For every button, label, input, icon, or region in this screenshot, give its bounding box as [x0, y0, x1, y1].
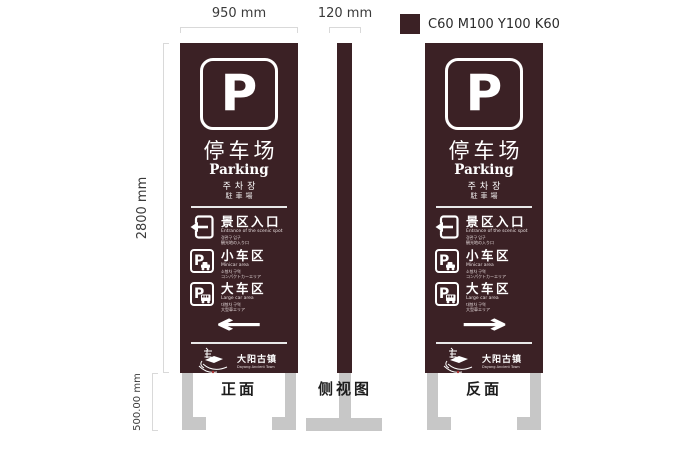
parking-p-badge: P [200, 58, 278, 130]
logo-english-text: Dayang Ancient Town [237, 365, 277, 369]
direction-arrow-right-icon: → [425, 309, 543, 341]
signage-design-drawing: 950 mm 120 mm C60 M100 Y100 K60 2800 mm … [0, 0, 680, 453]
row-small-car-area: P 小车区 Minicar area 소형차 구역 コンパクトカーエリア [189, 248, 295, 279]
row-scenic-entrance: 景区入口 Entrance of the scenic spot 경관구 입구 … [434, 214, 540, 245]
title-japanese: 駐車場 [425, 191, 543, 201]
parking-bus-icon: P [189, 281, 215, 307]
row-sub-en: Entrance of the scenic spot [466, 229, 528, 235]
row-title: 景区入口 [221, 214, 283, 229]
parking-bus-icon: P [434, 281, 460, 307]
color-spec-label: C60 M100 Y100 K60 [428, 17, 560, 32]
row-large-car-area: P 大车区 Large car area 대형차 구역 大型車エリア [434, 281, 540, 312]
title-english: Parking [180, 162, 298, 178]
dimension-500mm-label: 500.00 mm [132, 367, 144, 437]
row-title: 小车区 [221, 248, 266, 263]
dimension-500mm-bracket [152, 373, 158, 431]
title-english: Parking [425, 162, 543, 178]
parking-car-icon: P [189, 248, 215, 274]
row-sub-jp: コンパクトカーエリア [466, 274, 511, 279]
row-title: 小车区 [466, 248, 511, 263]
divider-line [191, 342, 287, 344]
brand-logo: 大阳古镇 Dayang Ancient Town [196, 347, 292, 374]
parking-p-badge: P [445, 58, 523, 130]
dimension-2800mm-label: 2800 mm [135, 168, 151, 248]
ancient-town-logo-icon [441, 347, 477, 374]
parking-p-letter: P [221, 68, 258, 118]
side-view-label: 侧视图 [300, 378, 390, 399]
row-scenic-entrance: 景区入口 Entrance of the scenic spot 경관구 입구 … [189, 214, 295, 245]
row-large-car-area: P 大车区 Large car area 대형차 구역 大型車エリア [189, 281, 295, 312]
row-title: 大车区 [221, 281, 266, 296]
parking-car-icon: P [434, 248, 460, 274]
title-japanese: 駐車場 [180, 191, 298, 201]
row-sub-jp: 観光地の入り口 [466, 240, 528, 245]
brand-logo: 大阳古镇 Dayang Ancient Town [441, 347, 537, 374]
direction-arrow-left-icon: ← [180, 309, 298, 341]
row-sub-jp: コンパクトカーエリア [221, 274, 266, 279]
dimension-120mm-bracket [329, 27, 361, 33]
sign-back-panel: P 停车场 Parking 주차장 駐車場 景区入口 Entrance of t… [425, 43, 543, 373]
back-left-foot [438, 417, 451, 430]
row-sub-jp: 観光地の入り口 [221, 240, 283, 245]
ancient-town-logo-icon [196, 347, 232, 374]
front-right-foot [272, 417, 285, 430]
logo-chinese-text: 大阳古镇 [482, 352, 522, 365]
row-small-car-area: P 小车区 Minicar area 소형차 구역 コンパクトカーエリア [434, 248, 540, 279]
dimension-950mm-bracket [180, 27, 298, 33]
title-chinese: 停车场 [425, 135, 543, 165]
back-right-foot [517, 417, 530, 430]
side-base-plate [306, 418, 382, 431]
entrance-arrow-icon [434, 214, 460, 240]
divider-line [436, 342, 532, 344]
sign-side-profile [337, 43, 352, 373]
dimension-950mm-label: 950 mm [180, 6, 298, 21]
dimension-2800mm-line [163, 43, 169, 373]
back-view-label: 反面 [425, 378, 543, 399]
entrance-arrow-icon [189, 214, 215, 240]
row-title: 景区入口 [466, 214, 528, 229]
logo-english-text: Dayang Ancient Town [482, 365, 522, 369]
divider-line [436, 206, 532, 208]
color-swatch [400, 14, 420, 34]
front-view-label: 正面 [180, 378, 298, 399]
parking-p-letter: P [466, 68, 503, 118]
logo-chinese-text: 大阳古镇 [237, 352, 277, 365]
row-title: 大车区 [466, 281, 511, 296]
row-sub-en: Entrance of the scenic spot [221, 229, 283, 235]
dimension-120mm-label: 120 mm [314, 6, 376, 21]
title-chinese: 停车场 [180, 135, 298, 165]
front-left-foot [193, 417, 206, 430]
divider-line [191, 206, 287, 208]
sign-front-panel: P 停车场 Parking 주차장 駐車場 景区入口 Entrance of t… [180, 43, 298, 373]
